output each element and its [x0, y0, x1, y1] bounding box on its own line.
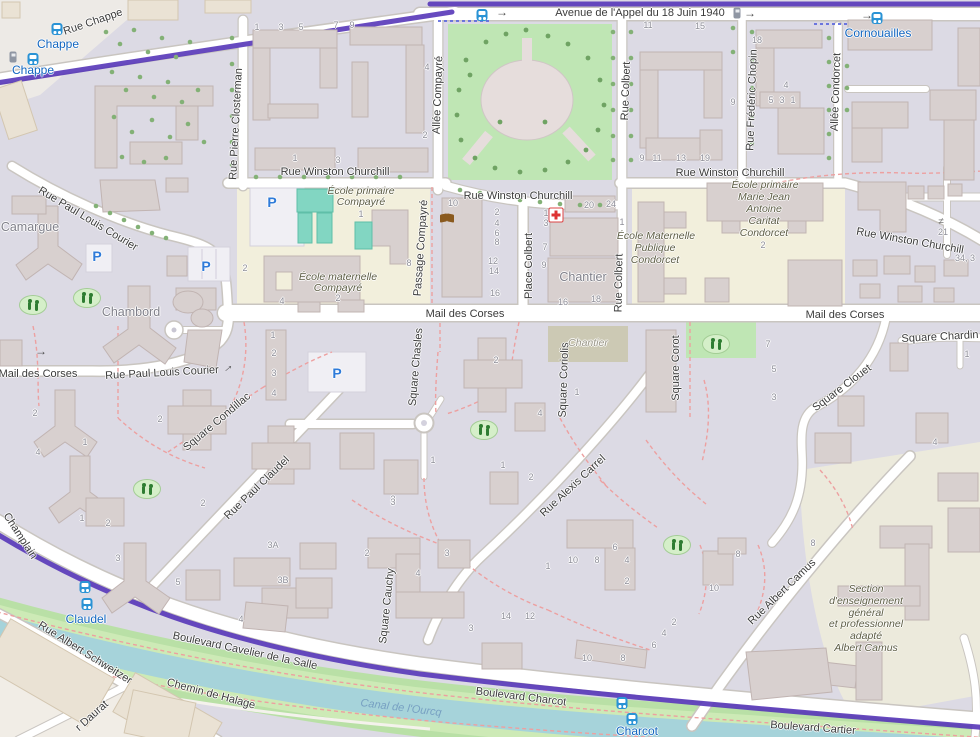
housenumber-label: 5: [771, 364, 776, 374]
housenumber-label: 10: [448, 198, 458, 208]
housenumber-label: 3B: [277, 575, 288, 585]
street-label: Avenue de l'Appel du 18 Juin 1940: [555, 7, 724, 19]
housenumber-label: 4: [932, 437, 937, 447]
oneway-arrow-icon: →: [496, 5, 508, 19]
housenumber-label: 2: [528, 472, 533, 482]
housenumber-label: 4: [783, 80, 788, 90]
housenumber-label: 16: [490, 288, 500, 298]
housenumber-label: 2: [105, 518, 110, 528]
housenumber-label: 1: [790, 95, 795, 105]
street-label: Boulevard Charcot: [475, 685, 567, 708]
housenumber-label: 20: [584, 200, 594, 210]
parking-icon: P: [92, 248, 101, 264]
school-label: Albert Camus: [834, 642, 898, 654]
housenumber-label: 1: [619, 217, 624, 227]
bus-stop-icon: [80, 581, 91, 593]
bus-stop-icon: [627, 713, 638, 725]
housenumber-label: 6: [612, 542, 617, 552]
place-label: Chambord: [102, 305, 160, 319]
street-label: Rue Winston Churchill: [281, 166, 390, 178]
housenumber-label: 12: [488, 256, 498, 266]
street-label: Rue Albert Camus: [746, 557, 819, 628]
transit-pole-icon: [10, 52, 17, 63]
housenumber-label: 1: [270, 330, 275, 340]
street-label: Rue Winston Churchill: [855, 226, 964, 257]
street-label: Square Clouet: [810, 362, 873, 414]
housenumber-label: 7: [333, 20, 338, 30]
street-label: Mail des Corses: [426, 308, 505, 320]
transit-stop-label: Chappe: [37, 37, 79, 51]
housenumber-label: 1: [430, 455, 435, 465]
street-label: Rue Albert Schweitzer: [36, 619, 134, 687]
school-label: d'enseignement: [829, 595, 903, 607]
parking-icon: P: [201, 258, 210, 274]
street-label: Allée Condorcet: [829, 53, 844, 132]
housenumber-label: 2: [422, 130, 427, 140]
housenumber-label: 34, 3: [955, 253, 975, 263]
housenumber-label: 5: [298, 22, 303, 32]
place-label: Chantier: [559, 270, 606, 284]
bus-stop-icon: [28, 53, 39, 65]
playground-icon: [73, 288, 101, 308]
housenumber-label: 3: [468, 623, 473, 633]
bus-stop-icon: [872, 12, 883, 24]
school-label: Marie Jean: [738, 191, 790, 203]
street-label: Boulevard Cavelier de la Salle: [172, 630, 319, 672]
housenumber-label: 4: [494, 218, 499, 228]
school-label: Section: [848, 583, 883, 595]
street-label: Rue Alexis Carrel: [538, 453, 608, 520]
housenumber-label: 2: [624, 576, 629, 586]
housenumber-label: 3: [771, 392, 776, 402]
parking-icon: P: [267, 194, 276, 210]
housenumber-label: 2: [32, 408, 37, 418]
street-label: Rue Paul Claudel: [222, 454, 292, 522]
housenumber-label: 4: [624, 555, 629, 565]
housenumber-label: 2: [494, 207, 499, 217]
school-label: Condorcet: [740, 227, 788, 239]
bus-stop-icon: [617, 697, 628, 709]
housenumber-label: 1: [292, 153, 297, 163]
map-canvas[interactable]: Avenue de l'Appel du 18 Juin 1940Rue Cha…: [0, 0, 980, 737]
housenumber-label: 14: [489, 266, 499, 276]
housenumber-label: 2: [200, 498, 205, 508]
street-label: Square Corot: [670, 335, 682, 400]
housenumber-label: 10: [568, 555, 578, 565]
housenumber-label: 6: [494, 228, 499, 238]
housenumber-label: 2: [671, 617, 676, 627]
housenumber-label: 9: [730, 97, 735, 107]
housenumber-label: 7: [765, 339, 770, 349]
housenumber-label: 3: [543, 218, 548, 228]
housenumber-label: 2: [493, 355, 498, 365]
housenumber-label: 10: [709, 583, 719, 593]
housenumber-label: 4: [279, 296, 284, 306]
housenumber-label: 1: [254, 22, 259, 32]
street-label: Square Coriolis: [557, 342, 572, 418]
area-label: Chantier: [568, 337, 608, 349]
street-label: Place Colbert: [523, 233, 535, 299]
housenumber-label: 13: [676, 153, 686, 163]
housenumber-label: 9: [639, 153, 644, 163]
street-label: Mail des Corses: [806, 309, 885, 321]
playground-icon: [702, 334, 730, 354]
housenumber-label: 4: [35, 447, 40, 457]
housenumber-label: 8: [620, 653, 625, 663]
housenumber-label: 3: [278, 22, 283, 32]
bus-stop-icon: [52, 23, 63, 35]
housenumber-label: 2: [157, 414, 162, 424]
bus-stop-icon: [477, 9, 488, 21]
housenumber-label: 19: [700, 153, 710, 163]
housenumber-label: 2: [335, 293, 340, 303]
transit-stop-label: Claudel: [66, 612, 107, 626]
housenumber-label: 10: [582, 653, 592, 663]
transit-stop-label: Charcot: [616, 724, 658, 737]
housenumber-label: 1: [79, 513, 84, 523]
housenumber-label: 3A: [267, 540, 278, 550]
street-label: Mail des Corses: [0, 368, 77, 380]
housenumber-label: 1: [574, 387, 579, 397]
housenumber-label: 4: [415, 568, 420, 578]
housenumber-label: 3: [444, 548, 449, 558]
school-label: École primaire: [327, 185, 394, 197]
housenumber-label: 1: [358, 209, 363, 219]
street-label: Passage Compayré: [412, 199, 431, 296]
transit-stop-label: Cornouailles: [845, 26, 912, 40]
housenumber-label: 8: [594, 555, 599, 565]
housenumber-label: 3: [779, 95, 784, 105]
place-label: Camargue: [1, 220, 59, 234]
housenumber-label: 4: [537, 408, 542, 418]
map-labels-layer: Avenue de l'Appel du 18 Juin 1940Rue Cha…: [0, 0, 980, 737]
playground-icon: [470, 420, 498, 440]
street-label: Square Cauchy: [377, 568, 397, 645]
library-icon: [440, 213, 454, 223]
street-label: Rue Frédéric Chopin: [744, 49, 760, 151]
street-label: Boulevard Cartier: [770, 719, 856, 737]
housenumber-label: 12: [525, 611, 535, 621]
transit-stop-label: Chappe: [12, 63, 54, 77]
housenumber-label: 2: [271, 348, 276, 358]
playground-icon: [133, 479, 161, 499]
school-label: adapté: [850, 630, 882, 642]
oneway-arrow-icon: →: [861, 8, 873, 22]
housenumber-label: 6: [651, 640, 656, 650]
housenumber-label: 3: [335, 155, 340, 165]
school-label: général: [848, 607, 883, 619]
housenumber-label: 14: [501, 611, 511, 621]
housenumber-label: 3: [390, 494, 395, 504]
playground-icon: [19, 295, 47, 315]
street-label: Rue Paul Louis Courier: [105, 364, 219, 382]
housenumber-label: 8: [735, 549, 740, 559]
street-label: Rue Chappe: [62, 6, 124, 37]
housenumber-label: 2: [364, 548, 369, 558]
waterway-label: Canal de l'Ourcq: [360, 697, 442, 719]
transit-pole-icon: [734, 8, 741, 19]
parking-icon: P: [332, 365, 341, 381]
housenumber-label: 11: [643, 20, 652, 30]
street-label: Rue Colbert: [619, 61, 633, 120]
street-label: Rue Colbert: [612, 254, 625, 313]
school-label: et professionnel: [829, 618, 903, 630]
oneway-arrow-icon: →: [35, 344, 47, 358]
housenumber-label: 8: [494, 237, 499, 247]
street-label: Rue Pierre Closterman: [227, 68, 245, 180]
housenumber-label: 2: [242, 263, 247, 273]
school-label: École Maternelle: [617, 230, 695, 242]
housenumber-label: 3: [271, 368, 276, 378]
street-label: Champlain: [1, 511, 40, 562]
housenumber-label: 1: [82, 437, 87, 447]
housenumber-label: 11: [652, 153, 661, 163]
street-label: Allée Compayré: [431, 56, 446, 135]
housenumber-label: 18: [752, 35, 762, 45]
school-label: Compayré: [337, 196, 385, 208]
school-label: École maternelle: [299, 271, 377, 283]
street-label: Square Condillac: [181, 390, 253, 453]
housenumber-label: 4: [271, 388, 276, 398]
housenumber-label: 5: [175, 577, 180, 587]
street-label: Square Chardin: [901, 329, 979, 345]
bus-stop-icon: [82, 598, 93, 610]
school-label: Condorcet: [631, 254, 679, 266]
street-label: r Daurat: [73, 698, 111, 734]
housenumber-label: 16: [558, 297, 568, 307]
pharmacy-icon: [549, 208, 564, 223]
housenumber-label: 9: [349, 20, 354, 30]
street-label: Rue Winston Churchill: [464, 190, 573, 202]
housenumber-label: 7: [542, 242, 547, 252]
street-label: Square Chasles: [407, 327, 426, 406]
school-label: Antoine: [746, 203, 782, 215]
housenumber-label: 5: [768, 95, 773, 105]
housenumber-label: 4: [238, 614, 243, 624]
housenumber-label: 8: [810, 538, 815, 548]
housenumber-label: 4: [424, 62, 429, 72]
housenumber-label: 9: [541, 260, 546, 270]
housenumber-label: 21: [938, 227, 948, 237]
housenumber-label: 24: [606, 199, 616, 209]
oneway-arrow-icon: →: [744, 6, 756, 20]
street-label: Rue Winston Churchill: [676, 167, 785, 179]
school-label: École primaire: [731, 179, 798, 191]
housenumber-label: 1: [545, 561, 550, 571]
housenumber-label: 8: [406, 258, 411, 268]
housenumber-label: 3: [115, 553, 120, 563]
gate-icon: ≠: [938, 217, 944, 228]
housenumber-label: 2: [760, 240, 765, 250]
housenumber-label: 3: [390, 497, 395, 507]
housenumber-label: 1: [543, 208, 548, 218]
housenumber-label: 1: [964, 349, 969, 359]
housenumber-label: 4: [661, 628, 666, 638]
street-label: Rue Paul Louis Courier: [36, 185, 140, 254]
school-label: Publique: [635, 242, 676, 254]
school-label: Compayré: [314, 282, 362, 294]
housenumber-label: 18: [591, 294, 601, 304]
school-label: Caritat: [749, 215, 780, 227]
housenumber-label: 1: [500, 460, 505, 470]
housenumber-label: 15: [695, 21, 705, 31]
oneway-arrow-icon: →: [218, 358, 236, 376]
playground-icon: [663, 535, 691, 555]
street-label: Chemin de Halage: [165, 676, 256, 711]
